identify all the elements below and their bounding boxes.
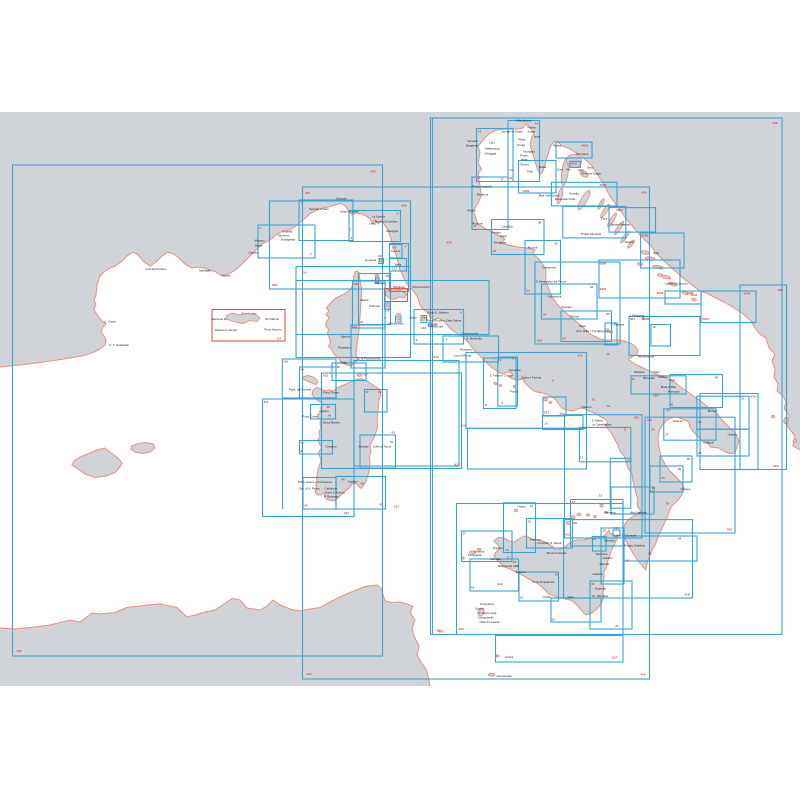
svg-text:I. Pianosa: I. Pianosa <box>612 323 625 327</box>
svg-text:35: 35 <box>526 289 530 293</box>
svg-text:Nizza: Nizza <box>255 244 263 248</box>
svg-text:6: 6 <box>416 338 418 342</box>
svg-text:Pass. dei Fornelli: Pass. dei Fornelli <box>289 388 312 392</box>
svg-text:19: 19 <box>510 168 514 172</box>
svg-text:Novalja: Novalja <box>569 192 579 196</box>
svg-text:Marghera: Marghera <box>466 143 479 147</box>
svg-text:46: 46 <box>300 449 304 453</box>
svg-text:38: 38 <box>477 175 481 179</box>
svg-text:Salerno: Salerno <box>582 405 592 409</box>
svg-text:Bordighera: Bordighera <box>281 238 296 242</box>
svg-text:Giardini: Giardini <box>603 556 613 560</box>
svg-text:21: 21 <box>591 582 595 586</box>
svg-text:Brindisi: Brindisi <box>708 409 718 413</box>
svg-text:Porto Garibaldi: Porto Garibaldi <box>472 185 492 189</box>
svg-text:36: 36 <box>538 221 542 225</box>
svg-text:43: 43 <box>391 431 395 435</box>
svg-text:0306: 0306 <box>600 262 607 266</box>
svg-text:Trani: Trani <box>653 370 660 374</box>
svg-text:Pantelleria: Pantelleria <box>480 602 494 606</box>
svg-text:13: 13 <box>626 459 630 463</box>
svg-text:20: 20 <box>592 594 596 598</box>
svg-text:432: 432 <box>370 170 375 174</box>
svg-text:920: 920 <box>778 288 783 292</box>
svg-text:Savona e Vado: Savona e Vado <box>309 207 329 211</box>
svg-text:Terracina: Terracina <box>509 368 521 372</box>
svg-text:Genova: Genova <box>336 197 347 201</box>
svg-text:436: 436 <box>772 121 777 125</box>
svg-text:17: 17 <box>462 532 466 536</box>
svg-text:Sciacca: Sciacca <box>515 570 526 574</box>
svg-text:Licata: Licata <box>543 595 551 599</box>
svg-text:Piombino: Piombino <box>393 285 405 289</box>
svg-text:Pianosa: Pianosa <box>369 304 380 308</box>
svg-text:44: 44 <box>390 440 394 444</box>
svg-text:Taranto: Taranto <box>673 419 683 423</box>
svg-text:434: 434 <box>305 191 310 195</box>
svg-text:P. Romana: P. Romana <box>324 495 338 499</box>
svg-text:27: 27 <box>665 433 669 437</box>
svg-text:Barletta: Barletta <box>635 370 645 374</box>
svg-text:26: 26 <box>678 467 682 471</box>
svg-text:29: 29 <box>741 396 745 400</box>
svg-text:Tolone: Tolone <box>222 274 231 278</box>
svg-text:23: 23 <box>603 529 607 533</box>
svg-text:Vasto: Vasto <box>579 324 587 328</box>
svg-text:35: 35 <box>554 242 558 246</box>
svg-text:di Castellabate: di Castellabate <box>592 423 612 427</box>
svg-text:Malamocco: Malamocco <box>485 147 500 151</box>
svg-text:Fano: Fano <box>500 234 507 238</box>
svg-text:27: 27 <box>667 409 671 413</box>
svg-text:25: 25 <box>661 476 665 480</box>
svg-text:912: 912 <box>497 582 502 586</box>
svg-text:Oristano: Oristano <box>326 445 337 449</box>
svg-text:Porto Ercole e Cala Galera: Porto Ercole e Cala Galera <box>427 319 462 323</box>
svg-text:41: 41 <box>365 390 369 394</box>
svg-text:434: 434 <box>641 191 646 195</box>
svg-text:46: 46 <box>341 478 345 482</box>
svg-text:Rivierca Draga: Rivierca Draga <box>581 172 601 176</box>
svg-text:Porto S. Stefano: Porto S. Stefano <box>427 311 449 315</box>
svg-text:122: 122 <box>421 326 426 330</box>
svg-text:S. Felice e Circeo: S. Felice e Circeo <box>490 374 513 378</box>
svg-text:Propriano: Propriano <box>338 346 351 350</box>
svg-text:34: 34 <box>543 313 547 317</box>
svg-text:Krk: Krk <box>566 167 571 171</box>
svg-text:435: 435 <box>438 630 443 634</box>
svg-text:15: 15 <box>527 520 531 524</box>
svg-text:Villa S. Giovanni: Villa S. Giovanni <box>615 534 637 538</box>
svg-text:6031: 6031 <box>691 293 698 297</box>
svg-text:230: 230 <box>458 627 463 631</box>
svg-text:Monopoli: Monopoli <box>668 390 680 394</box>
svg-text:921: 921 <box>630 317 635 321</box>
svg-text:S. Marinella: S. Marinella <box>466 337 482 341</box>
svg-text:0303: 0303 <box>600 183 607 187</box>
svg-text:157: 157 <box>394 505 399 509</box>
svg-text:Pescara: Pescara <box>561 305 572 309</box>
svg-text:11: 11 <box>623 428 627 432</box>
svg-text:Ancona: Ancona <box>528 246 538 250</box>
svg-text:Anc. della I. Tremiti: Anc. della I. Tremiti <box>576 329 601 333</box>
svg-text:Porto Torres: Porto Torres <box>323 391 339 395</box>
svg-text:911: 911 <box>344 511 349 515</box>
svg-text:Campobello: Campobello <box>478 616 494 620</box>
svg-text:G. di Portovecchio: G. di Portovecchio <box>357 357 381 361</box>
svg-text:Rio Marina: Rio Marina <box>265 317 279 321</box>
svg-text:Pola: Pola <box>527 170 533 174</box>
svg-text:10: 10 <box>551 618 555 622</box>
svg-text:Lido: Lido <box>489 141 495 145</box>
svg-text:Marina di Campo: Marina di Campo <box>215 328 237 332</box>
svg-text:Senigallia: Senigallia <box>494 241 507 245</box>
svg-text:34: 34 <box>590 285 594 289</box>
svg-text:Cala di Levante: Cala di Levante <box>479 620 499 624</box>
svg-text:29: 29 <box>698 420 702 424</box>
svg-text:Rovinj: Rovinj <box>520 163 528 167</box>
svg-text:Foci del Rodano: Foci del Rodano <box>145 267 166 271</box>
svg-text:110: 110 <box>302 271 307 275</box>
svg-text:Mola di Bari: Mola di Bari <box>661 385 677 389</box>
svg-text:Portovecchio: Portovecchio <box>413 285 430 289</box>
svg-text:Ravenna: Ravenna <box>477 193 489 197</box>
svg-text:Zara: Zara <box>601 217 607 221</box>
svg-text:31: 31 <box>607 404 611 408</box>
svg-text:Riccione: Riccione <box>472 222 483 226</box>
svg-text:Senj: Senj <box>587 166 593 170</box>
svg-text:121: 121 <box>392 267 397 271</box>
svg-text:Capraia: Capraia <box>374 281 385 285</box>
svg-text:13: 13 <box>599 494 603 498</box>
svg-text:10: 10 <box>592 398 596 402</box>
svg-text:Koper: Koper <box>528 130 536 134</box>
svg-text:6002: 6002 <box>571 162 578 166</box>
svg-text:30: 30 <box>715 376 719 380</box>
svg-text:Marina di Carrara: Marina di Carrara <box>375 220 398 224</box>
svg-text:C. Creus: C. Creus <box>104 320 116 324</box>
svg-text:Rovenska Vrata: Rovenska Vrata <box>555 197 576 201</box>
svg-text:C. S. Sebastian: C. S. Sebastian <box>109 343 129 347</box>
svg-text:36: 36 <box>493 249 497 253</box>
svg-text:Riposto: Riposto <box>600 562 610 566</box>
svg-text:24: 24 <box>678 537 682 541</box>
svg-text:Rimini: Rimini <box>467 209 475 213</box>
svg-text:18: 18 <box>471 586 475 590</box>
svg-text:Lido di Roma: Lido di Roma <box>454 354 471 358</box>
svg-text:Figari: Figari <box>340 361 348 365</box>
svg-text:0302: 0302 <box>523 189 530 193</box>
svg-text:47: 47 <box>300 441 304 445</box>
svg-text:40: 40 <box>353 326 357 330</box>
svg-text:1: 1 <box>310 252 312 256</box>
svg-text:I. Pelagosa: I. Pelagosa <box>630 314 645 318</box>
svg-text:6030: 6030 <box>643 317 650 321</box>
svg-text:Lampedusa: Lampedusa <box>496 674 511 678</box>
svg-text:31: 31 <box>631 377 635 381</box>
svg-text:Mazara del Vallo: Mazara del Vallo <box>498 564 520 568</box>
svg-text:11: 11 <box>580 456 584 460</box>
svg-text:Alghero: Alghero <box>319 409 329 413</box>
svg-text:Cattolica: Cattolica <box>501 225 513 229</box>
svg-text:14: 14 <box>650 490 654 494</box>
svg-text:25: 25 <box>687 457 691 461</box>
svg-text:Montecristo: Montecristo <box>389 322 404 326</box>
svg-text:Golfo di Tortoli: Golfo di Tortoli <box>373 445 392 449</box>
svg-text:6040: 6040 <box>702 317 709 321</box>
svg-text:Civitanova: Civitanova <box>542 266 556 270</box>
svg-text:117: 117 <box>277 337 282 341</box>
svg-text:6033: 6033 <box>657 291 664 295</box>
svg-text:45: 45 <box>328 414 332 418</box>
svg-text:Giglio: Giglio <box>409 316 417 320</box>
svg-text:Porto Conte: Porto Conte <box>302 415 318 419</box>
svg-text:Monfalcone: Monfalcone <box>517 119 532 123</box>
svg-text:Sestri Levante: Sestri Levante <box>340 210 359 214</box>
svg-text:I. Tremiti: I. Tremiti <box>598 330 609 334</box>
svg-text:12: 12 <box>652 325 656 329</box>
svg-text:3: 3 <box>351 236 353 240</box>
svg-text:913: 913 <box>433 355 438 359</box>
svg-text:S. Benedetto del Tronto: S. Benedetto del Tronto <box>536 280 567 284</box>
svg-text:115: 115 <box>378 254 383 258</box>
svg-text:19: 19 <box>509 176 513 180</box>
svg-text:911: 911 <box>264 400 269 404</box>
svg-text:Crotone: Crotone <box>680 487 691 491</box>
svg-text:0307: 0307 <box>600 287 607 291</box>
svg-text:6040: 6040 <box>744 292 751 296</box>
svg-text:Porto Empedocle: Porto Empedocle <box>532 580 555 584</box>
svg-text:Giulianova: Giulianova <box>548 295 562 299</box>
svg-text:19: 19 <box>520 596 524 600</box>
svg-text:Gela: Gela <box>567 595 573 599</box>
svg-text:Bisceglie: Bisceglie <box>643 376 655 380</box>
svg-text:919: 919 <box>727 528 732 532</box>
svg-text:Fiumicino: Fiumicino <box>460 348 473 352</box>
svg-text:P. Dietro Isola: P. Dietro Isola <box>479 611 497 615</box>
svg-text:Vada: Vada <box>395 263 402 267</box>
svg-text:0305: 0305 <box>642 234 649 238</box>
svg-text:Gaeta e Formia: Gaeta e Formia <box>521 376 541 380</box>
svg-text:Scauri: Scauri <box>475 607 484 611</box>
svg-text:Levanzo: Levanzo <box>474 550 485 554</box>
svg-text:Split: Split <box>653 251 659 255</box>
svg-text:Ajaccio: Ajaccio <box>341 335 351 339</box>
svg-text:Otranto: Otranto <box>728 433 738 437</box>
svg-text:Linosa: Linosa <box>505 655 514 659</box>
svg-text:920: 920 <box>653 394 658 398</box>
svg-text:5: 5 <box>384 316 386 320</box>
svg-text:Siracusa: Siracusa <box>597 594 609 598</box>
svg-text:Livorno: Livorno <box>391 249 401 253</box>
svg-text:432: 432 <box>16 649 21 653</box>
svg-text:Panarea: Panarea <box>605 511 616 515</box>
svg-text:21: 21 <box>615 624 619 628</box>
svg-text:914: 914 <box>460 424 465 428</box>
svg-text:40: 40 <box>385 274 389 278</box>
svg-text:42: 42 <box>378 390 382 394</box>
svg-text:922: 922 <box>537 339 542 343</box>
svg-text:Raba: Raba <box>539 165 546 169</box>
svg-text:30: 30 <box>670 403 674 407</box>
svg-text:Termini Imerese: Termini Imerese <box>546 551 567 555</box>
svg-text:17: 17 <box>500 177 504 181</box>
svg-text:49: 49 <box>300 368 304 372</box>
svg-text:40: 40 <box>360 320 364 324</box>
svg-text:434: 434 <box>306 672 311 676</box>
svg-text:Porto Azzurro: Porto Azzurro <box>264 328 282 332</box>
svg-text:Umag: Umag <box>517 143 525 147</box>
svg-text:0304: 0304 <box>616 208 623 212</box>
svg-text:910: 910 <box>446 241 451 245</box>
svg-text:Ponza: Ponza <box>510 390 519 394</box>
svg-text:Piran: Piran <box>519 138 526 142</box>
svg-text:10: 10 <box>544 422 548 426</box>
svg-text:42: 42 <box>336 365 340 369</box>
svg-text:Arbatax: Arbatax <box>359 445 370 449</box>
svg-text:920: 920 <box>773 464 778 468</box>
svg-text:Rijeka: Rijeka <box>553 144 561 148</box>
svg-text:Marsala: Marsala <box>490 557 501 561</box>
svg-text:434: 434 <box>640 673 645 677</box>
svg-text:23: 23 <box>648 552 652 556</box>
svg-text:127: 127 <box>544 411 549 415</box>
svg-text:Canale di Curzola: Canale di Curzola <box>665 282 688 286</box>
svg-text:909: 909 <box>272 283 277 287</box>
svg-text:Messina: Messina <box>604 539 615 543</box>
svg-text:912: 912 <box>323 374 328 378</box>
svg-text:Porticello S. Flavia: Porticello S. Flavia <box>538 541 562 545</box>
svg-text:917: 917 <box>612 656 617 660</box>
svg-text:Molfetta: Molfetta <box>658 375 669 379</box>
svg-text:Augusta: Augusta <box>595 587 606 591</box>
svg-text:24: 24 <box>625 559 629 563</box>
svg-text:26: 26 <box>651 428 655 432</box>
svg-text:19: 19 <box>554 573 558 577</box>
svg-text:Porto Vesme e Portoscuso: Porto Vesme e Portoscuso <box>298 480 333 484</box>
svg-text:Bastia: Bastia <box>360 298 368 302</box>
svg-text:Ustica: Ustica <box>517 505 525 509</box>
svg-text:Marsiglia: Marsiglia <box>199 269 211 273</box>
svg-text:914: 914 <box>577 354 582 358</box>
svg-text:46: 46 <box>360 482 364 486</box>
svg-text:Vrsar: Vrsar <box>521 158 528 162</box>
svg-text:45: 45 <box>304 504 308 508</box>
svg-text:Catania: Catania <box>593 572 603 576</box>
svg-text:Cagliari: Cagliari <box>348 480 358 484</box>
svg-text:915: 915 <box>634 416 639 420</box>
svg-text:Sibenic: Sibenic <box>625 240 635 244</box>
svg-text:7: 7 <box>446 337 448 341</box>
svg-text:Chioggia: Chioggia <box>485 152 497 156</box>
svg-text:119: 119 <box>283 360 288 364</box>
svg-text:Canale Pasman: Canale Pasman <box>610 223 631 227</box>
svg-text:12: 12 <box>606 352 610 356</box>
svg-text:28: 28 <box>698 451 702 455</box>
svg-text:Cres: Cres <box>557 167 564 171</box>
svg-text:916: 916 <box>750 395 755 399</box>
svg-text:Tihi Kanal: Tihi Kanal <box>576 152 589 156</box>
svg-text:Ortona: Ortona <box>570 315 579 319</box>
svg-text:16: 16 <box>505 548 509 552</box>
svg-text:Trapani: Trapani <box>493 546 503 550</box>
svg-text:Civitavecchia: Civitavecchia <box>461 332 478 336</box>
svg-text:45: 45 <box>379 503 383 507</box>
svg-text:Cannes: Cannes <box>248 251 259 255</box>
svg-text:Gallipoli: Gallipoli <box>703 441 714 445</box>
svg-text:22: 22 <box>593 537 597 541</box>
svg-text:Monaco: Monaco <box>254 239 265 243</box>
svg-text:La Spezia: La Spezia <box>372 215 385 219</box>
svg-text:919: 919 <box>647 418 652 422</box>
svg-text:Giannutri: Giannutri <box>431 325 443 329</box>
svg-text:18: 18 <box>478 130 482 134</box>
svg-text:Prolaz Zapuntel: Prolaz Zapuntel <box>581 232 602 236</box>
svg-text:16: 16 <box>530 504 534 508</box>
svg-text:6001: 6001 <box>582 144 589 148</box>
svg-text:Viareggio: Viareggio <box>386 229 399 233</box>
svg-text:Vibo Valentia: Vibo Valentia <box>630 511 647 515</box>
svg-text:33: 33 <box>606 312 610 316</box>
svg-text:25: 25 <box>666 502 670 506</box>
svg-text:Can. di S. Pietro: Can. di S. Pietro <box>298 487 319 491</box>
svg-text:Litorale di Grado: Litorale di Grado <box>501 130 523 134</box>
svg-text:Bari: Bari <box>670 378 675 382</box>
svg-text:14: 14 <box>572 500 576 504</box>
svg-text:909: 909 <box>401 204 406 208</box>
svg-text:Monfredonia: Monfredonia <box>638 355 654 359</box>
svg-text:Bosa Marina: Bosa Marina <box>323 421 340 425</box>
svg-text:9: 9 <box>501 401 503 405</box>
svg-text:33: 33 <box>562 337 566 341</box>
svg-text:918: 918 <box>684 593 689 597</box>
svg-text:Isola: Isola <box>534 135 540 139</box>
svg-text:113: 113 <box>396 312 401 316</box>
svg-text:Reggio Calabria: Reggio Calabria <box>624 544 645 548</box>
svg-text:Gorgona: Gorgona <box>365 258 377 262</box>
svg-text:8: 8 <box>485 403 487 407</box>
svg-text:Favignana: Favignana <box>468 553 482 557</box>
svg-text:903: 903 <box>354 282 359 286</box>
